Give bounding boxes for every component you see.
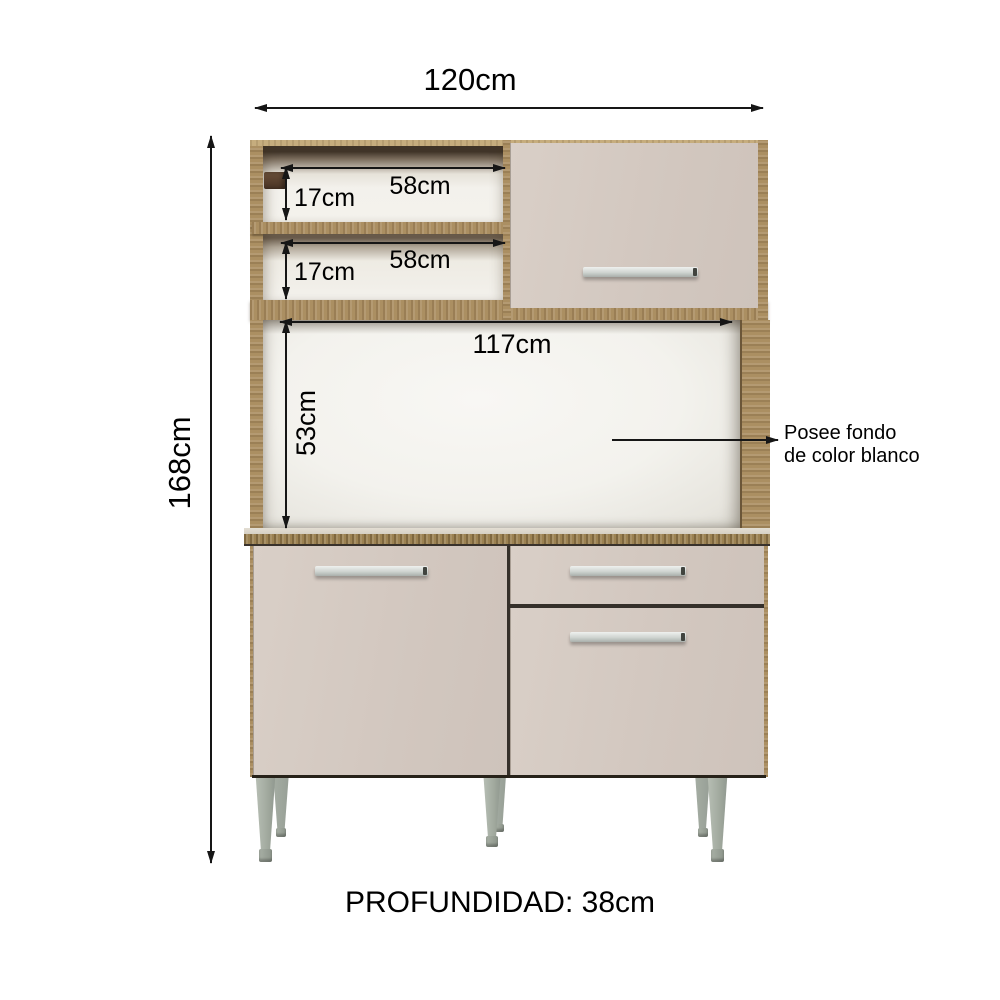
- shelf2-width-arrow: [281, 242, 505, 244]
- opening-width-label: 117cm: [432, 329, 592, 360]
- shelf1-width-arrow: [281, 167, 505, 169]
- shelf2-height-arrow: [285, 242, 287, 299]
- shelf1-width-label: 58cm: [350, 172, 490, 201]
- dimension-annotations: 120cm 168cm 58cm 17cm 58cm 17cm 117cm 53…: [0, 0, 1000, 1000]
- total-width-arrow: [255, 107, 763, 109]
- shelf2-width-label: 58cm: [350, 246, 490, 275]
- back-panel-callout-line2: de color blanco: [784, 445, 920, 468]
- total-height-arrow: [210, 136, 212, 863]
- shelf2-height-label: 17cm: [294, 258, 355, 287]
- opening-height-label: 53cm: [283, 373, 329, 473]
- furniture-dimension-diagram: 120cm 168cm 58cm 17cm 58cm 17cm 117cm 53…: [0, 0, 1000, 1000]
- back-panel-callout-arrow: [612, 439, 778, 441]
- opening-width-arrow: [280, 321, 732, 323]
- back-panel-callout-line1: Posee fondo: [784, 422, 920, 445]
- total-width-label: 120cm: [380, 62, 560, 98]
- shelf1-height-arrow: [285, 167, 287, 220]
- shelf1-height-label: 17cm: [294, 184, 355, 213]
- back-panel-callout-text: Posee fondo de color blanco: [784, 422, 920, 468]
- total-height-label: 168cm: [157, 413, 203, 513]
- depth-label: PROFUNDIDAD: 38cm: [300, 886, 700, 920]
